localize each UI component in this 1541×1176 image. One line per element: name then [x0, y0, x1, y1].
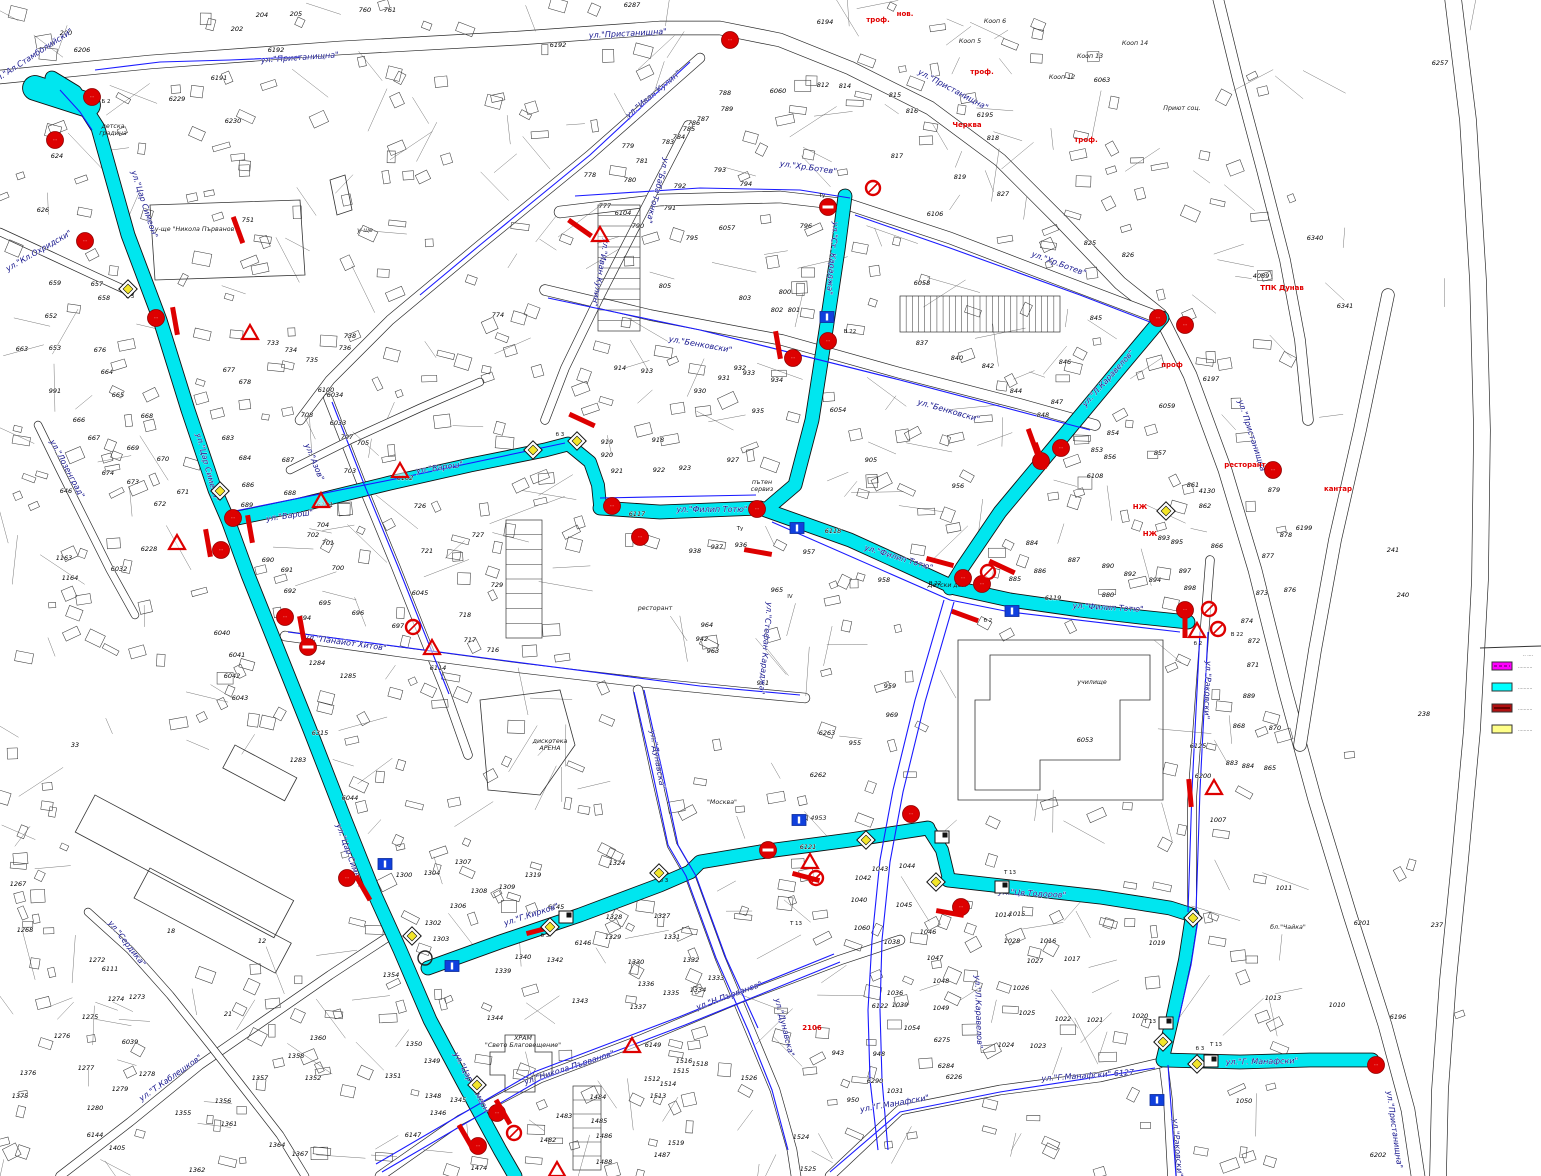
parcel-number: 717 — [464, 636, 477, 644]
parcel-number: 870 — [1269, 724, 1281, 732]
svg-text:···: ··· — [495, 1111, 499, 1116]
parcel-number: 1334 — [690, 986, 707, 994]
parcel-number: 1277 — [78, 1064, 95, 1072]
stop-sign-icon: ··· — [339, 870, 356, 887]
info-sign-icon — [1005, 606, 1019, 617]
parcel-number: 897 — [1179, 567, 1192, 575]
parcel-number: 943 — [832, 1049, 844, 1057]
svg-text:···: ··· — [791, 356, 795, 361]
parcel-number: 659 — [49, 279, 61, 287]
parcel-number: 697 — [392, 622, 405, 630]
svg-text:···: ··· — [1271, 468, 1275, 473]
red-annotation-label: проф — [1161, 361, 1183, 369]
parcel-number: 931 — [718, 374, 730, 382]
no-stopping-sign-icon — [1211, 622, 1225, 636]
parcel-number: 1014 — [995, 911, 1012, 919]
parcel-number: 844 — [1010, 387, 1022, 395]
parcel-number: 914 — [614, 364, 626, 372]
parcel-number: 1354 — [383, 971, 400, 979]
parcel-number: 1524 — [793, 1133, 810, 1141]
parcel-number: 1025 — [1019, 1009, 1036, 1017]
parcel-number: 889 — [1243, 692, 1255, 700]
svg-text:···: ··· — [219, 548, 223, 553]
parcel-number: 6146 — [575, 939, 592, 947]
parcel-number: 840 — [951, 354, 963, 362]
svg-text:···: ··· — [53, 138, 57, 143]
legend-note: ·· ···· — [1523, 654, 1533, 659]
parcel-number: 787 — [697, 115, 710, 123]
parcel-number: 938 — [689, 547, 701, 555]
parcel-number: 878 — [1280, 531, 1292, 539]
parcel-number: 1362 — [189, 1166, 206, 1174]
parcel-number: 6147 — [405, 1131, 422, 1139]
parcel-number: 6106 — [927, 210, 944, 218]
parcel-number: 6202 — [1370, 1151, 1387, 1159]
parcel-number: 886 — [1034, 567, 1046, 575]
parcel-number: 784 — [673, 133, 685, 141]
parcel-number: 778 — [584, 171, 596, 179]
parcel-number: 1364 — [269, 1141, 286, 1149]
parcel-number: 1350 — [406, 1040, 423, 1048]
parcel-number: 1044 — [899, 862, 916, 870]
parcel-number: 6122 — [872, 1002, 889, 1010]
parcel-number: 1026 — [1013, 984, 1030, 992]
parcel-number: 1042 — [855, 874, 872, 882]
parcel-number: 1332 — [683, 956, 700, 964]
info-sign-icon — [792, 815, 806, 826]
parcel-number: 1484 — [590, 1093, 607, 1101]
parcel-number: 663 — [16, 345, 28, 353]
parcel-number: 1022 — [1055, 1015, 1072, 1023]
no-stopping-sign-icon — [507, 1126, 521, 1140]
parcel-number: 789 — [721, 105, 733, 113]
parcel-number: 6111 — [102, 965, 119, 973]
info-sign-icon — [445, 961, 459, 972]
parcel-number: 1267 — [10, 880, 27, 888]
place-label: Кооп 12 — [1049, 74, 1075, 81]
parcel-number: 800 — [779, 288, 791, 296]
parcel-number: 674 — [102, 469, 114, 477]
parcel-number: 6315 — [312, 729, 329, 737]
parcel-number: 12 — [258, 937, 266, 945]
red-annotation-label: ресторант — [1224, 461, 1266, 469]
stop-sign-icon: ··· — [722, 32, 739, 49]
parcel-number: 1337 — [630, 1003, 647, 1011]
place-label: детска — [100, 123, 124, 130]
parcel-number: 1043 — [872, 865, 889, 873]
parcel-number: 1518 — [692, 1060, 709, 1068]
parcel-number: 6206 — [74, 46, 91, 54]
parcel-number: 1164 — [62, 574, 79, 582]
sign-plate-icon — [559, 911, 573, 923]
parcel-number: 825 — [1084, 239, 1096, 247]
parcel-number: 846 — [1059, 358, 1071, 366]
place-label: ресторант — [637, 605, 673, 612]
parcel-number: 721 — [421, 547, 433, 555]
sign-code-label: б 3 — [556, 432, 565, 438]
parcel-number: 646 — [60, 487, 72, 495]
parcel-number: 872 — [1248, 637, 1260, 645]
stop-sign-icon: ··· — [277, 609, 294, 626]
parcel-number: 1284 — [309, 659, 326, 667]
parcel-number: 1376 — [20, 1069, 37, 1077]
parcel-number: 703 — [344, 467, 356, 475]
place-label: АРЕНА — [538, 745, 560, 752]
parcel-number: 935 — [752, 407, 764, 415]
parcel-number: 1485 — [591, 1117, 608, 1125]
parcel-number: 6192 — [268, 46, 285, 54]
sign-code-label: б 2 — [984, 618, 993, 624]
parcel-number: 6262 — [810, 771, 827, 779]
sign-plate-icon — [995, 881, 1009, 893]
parcel-number: 670 — [157, 455, 169, 463]
parcel-number: 657 — [91, 280, 104, 288]
parcel-number: 812 — [817, 81, 829, 89]
svg-text:···: ··· — [90, 95, 94, 100]
red-annotation-label: НЖ — [1133, 503, 1148, 511]
place-label: пътен — [752, 479, 772, 486]
parcel-number: 921 — [611, 467, 623, 475]
parcel-number: 913 — [641, 367, 653, 375]
place-label: училище — [1076, 679, 1107, 686]
parcel-number: 6149 — [645, 1041, 662, 1049]
stop-sign-icon: ··· — [148, 310, 165, 327]
parcel-number: 1021 — [1087, 1016, 1104, 1024]
parcel-number: 21 — [224, 1010, 232, 1018]
parcel-number: 1335 — [663, 989, 680, 997]
parcel-number: 6059 — [1159, 402, 1176, 410]
parcel-number: 1038 — [884, 938, 901, 946]
parcel-number: 6104 — [615, 209, 632, 217]
parcel-number: 880 — [1102, 591, 1114, 599]
svg-text:···: ··· — [283, 615, 287, 620]
parcel-number: 6043 — [232, 694, 249, 702]
svg-text:···: ··· — [83, 239, 87, 244]
parcel-number: 677 — [223, 366, 236, 374]
parcel-number: 6275 — [934, 1036, 951, 1044]
parcel-number: 6200 — [1195, 772, 1212, 780]
svg-text:···: ··· — [154, 316, 158, 321]
parcel-number: 819 — [954, 173, 966, 181]
parcel-number: 853 — [1091, 446, 1103, 454]
parcel-number: 1514 — [660, 1080, 677, 1088]
parcel-number: 905 — [865, 456, 877, 464]
parcel-number: 626 — [37, 206, 49, 214]
svg-text:···: ··· — [909, 812, 913, 817]
parcel-number: 1487 — [654, 1151, 671, 1159]
parcel-number: 1486 — [596, 1132, 613, 1140]
parcel-number: 1050 — [1236, 1097, 1253, 1105]
parcel-number: 857 — [1154, 449, 1167, 457]
parcel-number: 760 — [359, 6, 371, 14]
place-label: у-ще "Никола Първанов" — [154, 226, 238, 233]
parcel-number: 6057 — [719, 224, 736, 232]
stop-sign-icon: ··· — [225, 510, 242, 527]
parcel-number: 847 — [1051, 398, 1064, 406]
stop-sign-icon: ··· — [47, 132, 64, 149]
parcel-number: 6340 — [1307, 234, 1324, 242]
parcel-number: 963 — [707, 647, 719, 655]
parcel-number: 1331 — [664, 933, 681, 941]
stop-sign-icon: ··· — [820, 333, 837, 350]
parcel-number: 934 — [771, 376, 783, 384]
parcel-number: 6118 — [825, 527, 842, 535]
parcel-number: 726 — [414, 502, 426, 510]
parcel-number: 959 — [884, 682, 896, 690]
parcel-number: 6039 — [122, 1038, 139, 1046]
parcel-number: 240 — [1397, 591, 1409, 599]
parcel-number: 676 — [94, 346, 106, 354]
parcel-number: 751 — [242, 216, 254, 224]
parcel-number: 6199 — [1296, 524, 1313, 532]
stop-sign-icon: ··· — [1177, 317, 1194, 334]
parcel-number: 890 — [1102, 562, 1114, 570]
parcel-number: 1348 — [425, 1092, 442, 1100]
parcel-number: 1028 — [1004, 937, 1021, 945]
parcel-number: 6257 — [1432, 59, 1449, 67]
parcel-number: 1355 — [175, 1109, 192, 1117]
parcel-number: 955 — [849, 739, 861, 747]
place-label: "Москва" — [707, 799, 737, 806]
place-label: бл."Чайка" — [1270, 923, 1306, 931]
parcel-number: 1327 — [654, 912, 671, 920]
parcel-number: 6040 — [214, 629, 231, 637]
parcel-number: 6119 — [1045, 594, 1062, 602]
parcel-number: 861 — [1187, 481, 1199, 489]
parcel-number: 1010 — [1329, 1001, 1346, 1009]
parcel-number: 856 — [1104, 453, 1116, 461]
legend-item-label: ·········· — [1518, 666, 1532, 671]
no-stopping-sign-icon — [406, 620, 420, 634]
svg-text:···: ··· — [980, 582, 984, 587]
parcel-number: 814 — [839, 82, 851, 90]
stop-sign-icon: ··· — [213, 542, 230, 559]
parcel-number: 1040 — [851, 896, 868, 904]
info-sign-icon — [820, 312, 834, 323]
place-label: Кооп 13 — [1077, 53, 1103, 60]
parcel-number: 1272 — [89, 956, 106, 964]
parcel-number: 1045 — [896, 901, 913, 909]
parcel-number: 919 — [601, 438, 613, 446]
place-label: ХРАМ — [513, 1035, 532, 1042]
parcel-number: 6117 — [629, 510, 646, 518]
parcel-number: 956 — [952, 482, 964, 490]
parcel-number: 6228 — [141, 545, 158, 553]
parcel-number: 6121 — [800, 843, 817, 851]
parcel-number: 805 — [659, 282, 671, 290]
parcel-number: 707 — [341, 433, 354, 441]
parcel-number: 780 — [624, 176, 636, 184]
parcel-number: 6290 — [867, 1077, 884, 1085]
stop-sign-icon: ··· — [632, 529, 649, 546]
stop-sign-icon: ··· — [1265, 462, 1282, 479]
parcel-number: 1054 — [904, 1024, 921, 1032]
parcel-number: 817 — [891, 152, 904, 160]
parcel-number: 1513 — [650, 1092, 667, 1100]
parcel-number: 1330 — [628, 958, 645, 966]
parcel-number: 958 — [878, 576, 890, 584]
parcel-number: 729 — [491, 581, 503, 589]
parcel-number: 1278 — [139, 1070, 156, 1078]
map-viewport[interactable]: 2002022042056206619261926191622962306246… — [0, 0, 1541, 1176]
street-label: ул."Г. Манафски" — [1225, 1056, 1299, 1066]
parcel-number: 777 — [599, 202, 612, 210]
parcel-number: 877 — [1262, 552, 1275, 560]
parcel-number: 6263 — [819, 729, 836, 737]
parcel-number: 202 — [231, 25, 243, 33]
parcel-number: 874 — [1241, 617, 1253, 625]
parcel-number: 1023 — [1030, 1042, 1047, 1050]
parcel-number: 792 — [674, 182, 686, 190]
sign-code-label: Ту — [818, 193, 826, 199]
map-canvas[interactable]: 2002022042056206619261926191622962306246… — [0, 0, 1541, 1176]
parcel-number: 1019 — [1149, 939, 1166, 947]
red-annotation-label: троф. — [970, 68, 993, 76]
parcel-number: 6226 — [946, 1073, 963, 1081]
parcel-number: 6053 — [1077, 736, 1094, 744]
parcel-number: 204 — [256, 11, 268, 19]
parcel-number: 1300 — [396, 871, 413, 879]
svg-text:···: ··· — [345, 876, 349, 881]
street-label: ул."Филип Тотю" — [675, 505, 747, 514]
no-stopping-sign-icon — [981, 565, 995, 579]
sign-code-label: Т 13 — [1209, 1042, 1223, 1048]
parcel-number: 1309 — [499, 883, 516, 891]
parcel-number: 957 — [803, 548, 816, 556]
parcel-number: 1013 — [1265, 994, 1282, 1002]
svg-text:···: ··· — [231, 516, 235, 521]
parcel-number: 691 — [281, 566, 293, 574]
parcel-number: 6054 — [830, 406, 847, 414]
parcel-number: 684 — [239, 454, 251, 462]
parcel-number: 1352 — [305, 1074, 322, 1082]
parcel-number: 700 — [332, 564, 344, 572]
parcel-number: 6042 — [224, 672, 241, 680]
parcel-number: 1351 — [385, 1072, 402, 1080]
parcel-number: 667 — [88, 434, 101, 442]
parcel-number: 669 — [127, 444, 139, 452]
parcel-number: 1346 — [430, 1109, 447, 1117]
parcel-number: 965 — [771, 586, 783, 594]
parcel-number: 4089 — [1253, 272, 1270, 280]
parcel-number: 791 — [664, 204, 676, 212]
parcel-number: 1016 — [1040, 937, 1057, 945]
sign-code-label: Т 13 — [1003, 870, 1017, 876]
stop-sign-icon: ··· — [1150, 310, 1167, 327]
sign-code-label: IV — [787, 594, 793, 600]
place-label: Приют соц. — [1163, 105, 1200, 112]
parcel-number: 892 — [1124, 570, 1136, 578]
parcel-number: 1483 — [556, 1112, 573, 1120]
svg-text:···: ··· — [476, 1144, 480, 1149]
stop-sign-icon: ··· — [903, 806, 920, 823]
parcel-number: 6041 — [229, 651, 246, 659]
parcel-number: 1356 — [215, 1097, 232, 1105]
parcel-number: 1017 — [1064, 955, 1081, 963]
parcel-number: 898 — [1184, 584, 1196, 592]
parcel-number: 923 — [679, 464, 691, 472]
parcel-number: 942 — [696, 635, 708, 643]
parcel-number: 1304 — [424, 869, 441, 877]
parcel-number: 716 — [487, 646, 499, 654]
parcel-number: 1011 — [1276, 884, 1293, 892]
parcel-number: 702 — [307, 531, 319, 539]
parcel-number: 6192 — [550, 41, 567, 49]
parcel-number: 33 — [71, 741, 79, 749]
parcel-number: 866 — [1211, 542, 1223, 550]
parcel-number: 1048 — [933, 977, 950, 985]
place-label: сервиз — [751, 486, 774, 493]
parcel-number: 795 — [686, 234, 698, 242]
parcel-number: 1525 — [800, 1165, 817, 1173]
parcel-number: 6194 — [817, 18, 834, 26]
parcel-number: 652 — [45, 312, 57, 320]
parcel-number: 991 — [49, 387, 61, 395]
parcel-number: 848 — [1037, 411, 1049, 419]
road-closure-bar — [1183, 610, 1188, 638]
parcel-number: 845 — [1090, 314, 1102, 322]
parcel-number: 1339 — [495, 967, 512, 975]
svg-text:···: ··· — [610, 504, 614, 509]
svg-text:···: ··· — [1374, 1063, 1378, 1068]
parcel-number: 1482 — [540, 1136, 557, 1144]
parcel-number: 1345 — [450, 1096, 467, 1104]
stop-sign-icon: ··· — [77, 233, 94, 250]
parcel-number: 1375 — [12, 1092, 29, 1100]
legend-item-label: ·········· — [1518, 708, 1532, 713]
parcel-number: 237 — [1431, 921, 1444, 929]
parcel-number: 736 — [339, 344, 351, 352]
parcel-number: 871 — [1247, 661, 1259, 669]
parcel-number: 964 — [701, 621, 713, 629]
parcel-number: 794 — [740, 180, 752, 188]
sign-code-label: В 22 — [1231, 632, 1244, 638]
svg-text:···: ··· — [961, 576, 965, 581]
svg-text:···: ··· — [826, 339, 830, 344]
parcel-number: 6125 — [1190, 742, 1207, 750]
parcel-number: 1367 — [292, 1150, 309, 1158]
parcel-number: 205 — [290, 10, 302, 18]
parcel-number: 1357 — [252, 1074, 269, 1082]
parcel-number: 837 — [916, 339, 929, 347]
parcel-number: 818 — [987, 134, 999, 142]
stop-sign-icon: ··· — [604, 498, 621, 515]
parcel-number: 6287 — [624, 1, 641, 9]
parcel-number: 884 — [1026, 539, 1038, 547]
parcel-number: 6060 — [770, 87, 787, 95]
parcel-number: 624 — [51, 152, 63, 160]
info-sign-icon — [378, 859, 392, 870]
cyan-swatch — [1492, 683, 1512, 691]
stop-sign-icon: ··· — [1368, 1057, 1385, 1074]
parcel-number: 705 — [357, 439, 369, 447]
parcel-number: 1336 — [638, 980, 655, 988]
parcel-number: 1515 — [673, 1067, 690, 1075]
parcel-number: 1283 — [290, 756, 307, 764]
svg-text:···: ··· — [755, 507, 759, 512]
parcel-number: 803 — [739, 294, 751, 302]
sign-code-label: Т 13 — [789, 921, 803, 927]
parcel-number: 1031 — [887, 1087, 904, 1095]
parcel-number: 666 — [73, 416, 85, 424]
parcel-number: 868 — [1233, 722, 1245, 730]
parcel-number: 1268 — [17, 926, 34, 934]
parcel-number: 688 — [284, 489, 296, 497]
parcel-number: 1027 — [1027, 957, 1044, 965]
parcel-number: 738 — [344, 332, 356, 340]
red-annotation-label: кантар — [1324, 485, 1352, 493]
sign-code-label: б 2 — [1194, 641, 1203, 647]
